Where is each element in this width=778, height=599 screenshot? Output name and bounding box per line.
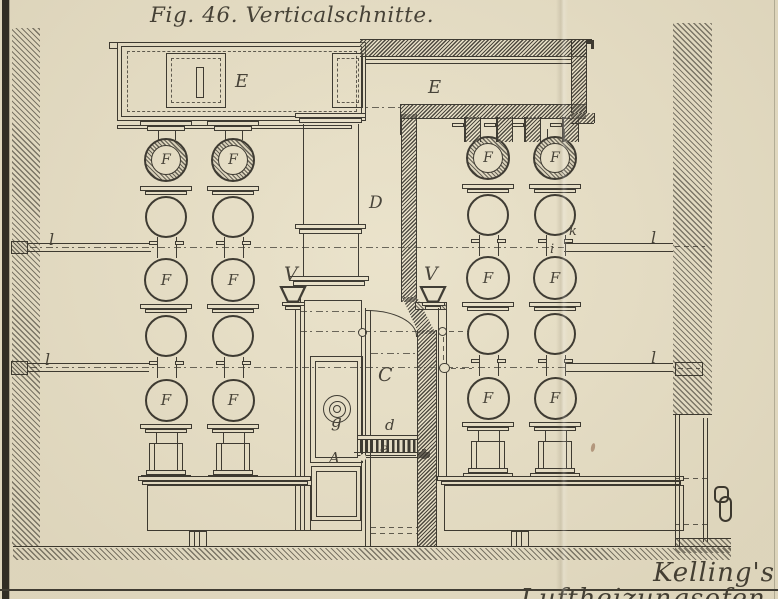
leg-edge	[540, 117, 541, 142]
label-V-right: V	[424, 265, 438, 284]
pot-neck	[479, 235, 499, 256]
damper-pivot	[439, 363, 450, 374]
pot-neck	[157, 357, 177, 378]
neck-tab	[538, 359, 547, 363]
slab-lip	[591, 40, 595, 49]
flue-end-edge	[571, 40, 572, 113]
leg-edge	[496, 117, 497, 142]
chamber-wall	[365, 308, 366, 546]
neck-tab	[497, 359, 506, 363]
plate-left-shadow	[9, 0, 10, 599]
pot-neck	[224, 237, 244, 258]
center-line	[371, 353, 417, 354]
foot-line	[199, 531, 200, 547]
door-jamb	[679, 415, 680, 546]
heating-pot-core: F	[473, 143, 503, 173]
label-l: l	[651, 350, 656, 366]
pillar-edge	[303, 124, 304, 277]
center-line	[340, 107, 402, 108]
flue-end-edge	[586, 40, 587, 113]
flange-bar	[534, 307, 576, 311]
rod-anchor-plate	[11, 241, 28, 254]
flue-end-wall	[571, 40, 586, 113]
duct-drop-leg	[465, 117, 480, 142]
flue-wall-edge	[416, 114, 417, 302]
leg-edge	[464, 117, 465, 142]
neck-tab	[149, 241, 158, 245]
pot-label-F: F	[228, 393, 238, 408]
heating-pot: F	[144, 258, 188, 302]
door-jamb	[675, 415, 676, 546]
box-lip	[109, 42, 118, 49]
pot-sphere	[212, 315, 254, 357]
slab-underline	[365, 63, 571, 64]
neck-tab	[175, 361, 184, 365]
hidden-line	[675, 524, 707, 525]
plate-right-edge	[774, 0, 775, 599]
hidden-line	[371, 533, 417, 534]
neck-tab	[216, 241, 225, 245]
flange-bar	[534, 189, 576, 193]
flue-end-step	[571, 113, 594, 123]
rod-anchor-plate	[11, 361, 28, 375]
leg-tab	[512, 123, 524, 127]
leg-edge	[512, 117, 513, 142]
pedestal-neck	[223, 433, 245, 443]
foot-line	[194, 531, 195, 547]
pot-label-F: F	[483, 271, 493, 286]
tie-rod	[566, 363, 673, 364]
pedestal-neck	[478, 431, 500, 441]
neck-tab	[471, 239, 480, 243]
pillar-flange	[299, 118, 362, 123]
pot-label-F: F	[483, 391, 493, 406]
door-panel-edge	[707, 418, 708, 542]
duct-drop-leg	[497, 117, 512, 142]
flue-end-edge	[594, 113, 595, 123]
flue-wall-edge	[401, 114, 402, 302]
flange-bar	[145, 429, 187, 433]
heating-pot: F	[212, 379, 255, 422]
flue-wall	[402, 114, 416, 302]
pot-label-F: F	[161, 273, 171, 288]
pedestal	[471, 441, 505, 469]
pedestal	[216, 443, 250, 471]
foot-line	[516, 531, 517, 547]
label-l: l	[45, 352, 50, 368]
flange-bar	[467, 307, 509, 311]
pot-neck	[479, 355, 499, 376]
foot-line	[521, 531, 522, 547]
pot-neck	[157, 237, 177, 258]
paper-fold-crease	[556, 0, 568, 599]
base-foot	[189, 531, 207, 547]
pot-label-F: F	[228, 153, 238, 167]
pot-sphere	[467, 194, 509, 236]
engraving-plate: F F F F	[0, 0, 778, 599]
pot-label-F: F	[161, 393, 171, 408]
leg-edge	[524, 117, 525, 142]
heating-pot-column: F F F	[533, 136, 577, 480]
label-C: C	[378, 366, 393, 385]
heating-pot: F	[466, 256, 510, 300]
flange-bar	[212, 309, 254, 313]
base-plinth	[147, 485, 311, 531]
ceiling-slab	[360, 40, 586, 56]
knob-center	[336, 408, 339, 411]
base-foot	[511, 531, 529, 547]
header-duct-corner	[400, 105, 401, 135]
chamber-wall	[370, 310, 371, 546]
heating-pot: F	[467, 377, 510, 420]
neck-tab	[216, 361, 225, 365]
flange-bar	[212, 429, 254, 433]
neck-tab	[242, 361, 251, 365]
heating-pot-core: F	[151, 145, 181, 175]
slab-edge	[360, 56, 586, 57]
flange-bar	[145, 309, 187, 313]
register-panel-dashed	[337, 58, 359, 103]
heating-pot: F	[533, 256, 577, 300]
pillar-edge	[358, 124, 359, 277]
chamber-arch	[365, 310, 417, 337]
heating-pot: F	[145, 379, 188, 422]
rod-pivot	[360, 454, 367, 461]
heating-pot-column: F F F	[211, 138, 255, 482]
floor-hatching	[13, 548, 731, 560]
heating-pot-column: F F F	[144, 138, 188, 482]
pot-sphere	[145, 315, 187, 357]
tie-rod	[566, 371, 673, 372]
tie-rod	[564, 251, 673, 252]
duct-drop-leg	[525, 117, 540, 142]
register-slot	[196, 67, 204, 98]
pedestal-neck	[156, 433, 178, 443]
neck-tab	[538, 239, 547, 243]
label-E-left: E	[235, 73, 248, 91]
pot-neck	[224, 357, 244, 378]
pot-sphere	[534, 313, 576, 355]
left-masonry-wall	[12, 28, 40, 547]
flange-bar	[145, 191, 187, 195]
ash-door-panel	[316, 471, 357, 517]
flange-bar	[534, 427, 576, 431]
paper-stain	[590, 443, 596, 453]
pot-sphere	[467, 313, 509, 355]
flange-bar	[467, 427, 509, 431]
plate-bottom-rule	[0, 589, 778, 592]
heating-pot: F	[534, 377, 577, 420]
heating-pot: F	[211, 258, 255, 302]
label-E-right: E	[428, 79, 441, 97]
hidden-line	[371, 527, 417, 528]
label-A: A	[329, 451, 340, 466]
funnel-base	[285, 306, 301, 310]
label-V-left: V	[284, 265, 298, 284]
neck-tab	[242, 241, 251, 245]
label-d: d	[385, 418, 395, 433]
pillar-step	[293, 281, 365, 286]
damper-pivot	[438, 327, 448, 337]
neck-tab	[149, 361, 158, 365]
heating-pot-column: F F F	[466, 136, 510, 480]
label-i: i	[550, 243, 554, 256]
neck-tab	[175, 241, 184, 245]
pot-label-F: F	[228, 273, 238, 288]
leg-tab	[484, 123, 496, 127]
pot-label-F: F	[161, 153, 171, 167]
flue-wall-lower	[418, 330, 436, 547]
label-k: k	[569, 225, 577, 238]
flange-bar	[467, 189, 509, 193]
heating-pot-core: F	[218, 145, 248, 175]
neck-tab	[497, 239, 506, 243]
leg-edge	[480, 117, 481, 142]
center-line	[300, 311, 363, 312]
label-D: D	[369, 195, 383, 212]
pot-label-F: F	[483, 151, 493, 165]
flange-bar	[212, 191, 254, 195]
right-masonry-wall	[673, 23, 712, 415]
flue-end-edge	[571, 123, 594, 124]
pedestal	[149, 443, 183, 471]
label-e: e	[380, 442, 388, 456]
label-l: l	[49, 232, 54, 248]
hidden-line	[675, 478, 707, 479]
pot-sphere	[212, 196, 254, 238]
hidden-line	[443, 337, 444, 362]
door-latch-handle	[719, 496, 732, 522]
figure-caption: Kelling's Luftheizungsofen.	[425, 560, 775, 599]
pot-sphere	[145, 196, 187, 238]
slab-underline	[365, 59, 571, 60]
label-g: g	[331, 414, 342, 431]
leg-tab	[452, 123, 464, 127]
pillar-flange	[299, 229, 362, 234]
label-l: l	[651, 230, 656, 246]
flue-wall-edge	[417, 330, 418, 547]
neck-tab	[471, 359, 480, 363]
tie-rod	[564, 243, 673, 244]
figure-title: Fig. 46. Verticalschnitte.	[150, 5, 480, 27]
